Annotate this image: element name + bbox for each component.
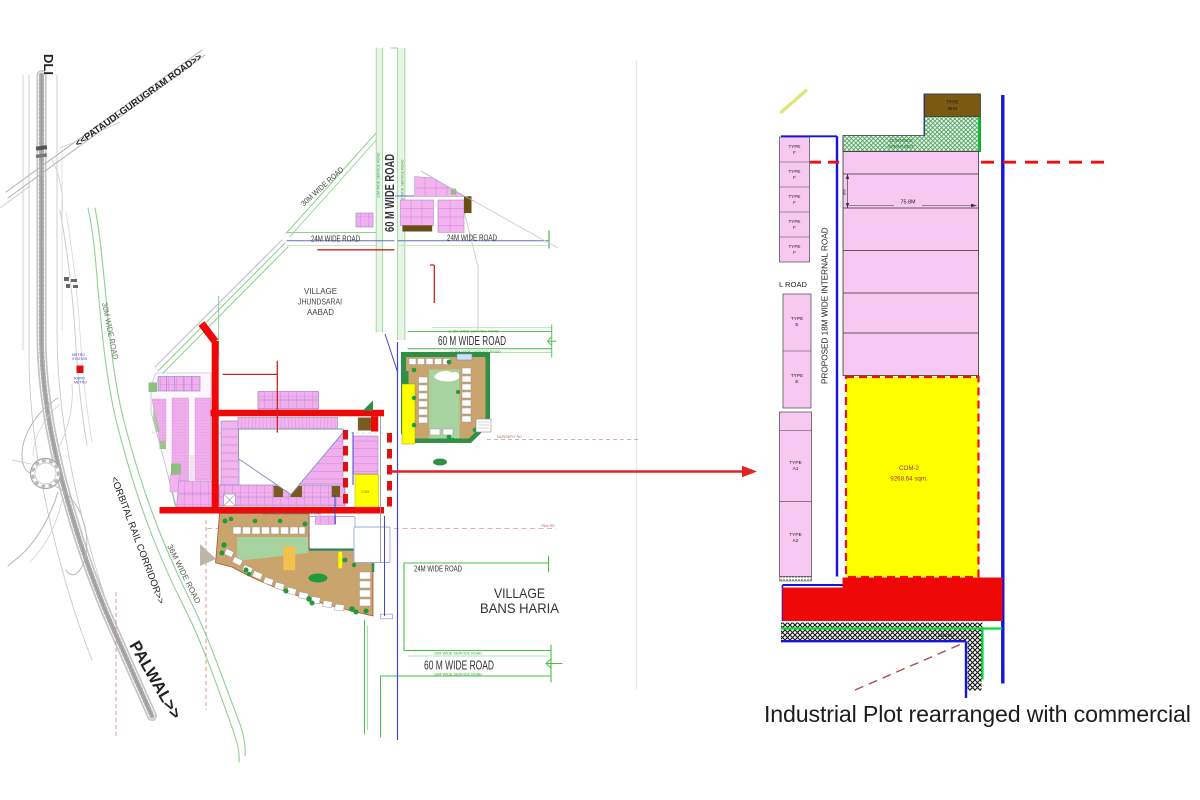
svg-text:A1: A1 (793, 466, 799, 472)
svg-text:F: F (793, 150, 796, 155)
svg-text:VILLAGE: VILLAGE (304, 287, 338, 296)
svg-text:DLI: DLI (41, 54, 56, 75)
svg-text:GREEN BELT: GREEN BELT (888, 144, 915, 149)
svg-text:BANS HARIA: BANS HARIA (480, 601, 560, 616)
svg-text:TYPE: TYPE (789, 144, 801, 149)
svg-text:NURSERY RD: NURSERY RD (497, 435, 522, 439)
svg-text:STATION: STATION (72, 357, 87, 361)
svg-text:11.5M WIDE SERVICE ROAD: 11.5M WIDE SERVICE ROAD (448, 330, 499, 334)
svg-text:F: F (793, 225, 796, 230)
svg-text:TYPE: TYPE (947, 100, 959, 105)
svg-text:75M RD: 75M RD (541, 524, 555, 528)
svg-text:75.8M: 75.8M (901, 200, 916, 206)
svg-text:A2: A2 (793, 538, 799, 544)
svg-text:60 M WIDE ROAD: 60 M WIDE ROAD (438, 334, 506, 348)
svg-text:12.5M WIDE: 12.5M WIDE (889, 138, 913, 143)
svg-text:TYPE: TYPE (791, 373, 804, 379)
svg-text:24M WIDE ROAD: 24M WIDE ROAD (311, 235, 360, 244)
svg-text:TYPE: TYPE (789, 532, 802, 538)
svg-text:F: F (793, 175, 796, 180)
svg-text:8M: 8M (842, 189, 847, 195)
svg-text:24M WIDE ROAD: 24M WIDE ROAD (414, 565, 462, 574)
svg-text:JHUNDSARAI: JHUNDSARAI (298, 298, 342, 307)
svg-text:24M WIDE ROAD: 24M WIDE ROAD (447, 234, 497, 243)
svg-text:60 M WIDE ROAD: 60 M WIDE ROAD (383, 154, 397, 232)
svg-text:VILLAGE: VILLAGE (494, 586, 545, 601)
svg-text:TYPE: TYPE (789, 169, 801, 174)
svg-text:60 M WIDE ROAD: 60 M WIDE ROAD (424, 659, 494, 673)
svg-text:12M WIDE SERVICE ROAD: 12M WIDE SERVICE ROAD (377, 152, 381, 198)
svg-text:TYPE: TYPE (791, 316, 804, 322)
svg-text:9268.64 sqm.: 9268.64 sqm. (890, 476, 928, 483)
svg-text:E: E (795, 379, 798, 385)
svg-text:PROPOSED 18M WIDE INTERNAL ROA: PROPOSED 18M WIDE INTERNAL ROAD (821, 227, 830, 384)
svg-text:METRO: METRO (74, 381, 87, 385)
svg-text:GREEN: GREEN (938, 633, 954, 638)
svg-text:60M WIDE ROAD 24M WIDE ROAD: 60M WIDE ROAD 24M WIDE ROAD (263, 512, 322, 516)
svg-text:10M WIDE SERVICE ROAD: 10M WIDE SERVICE ROAD (434, 673, 482, 677)
svg-text:L ROAD: L ROAD (779, 280, 808, 289)
svg-text:F: F (793, 200, 796, 205)
svg-text:COM-2: COM-2 (899, 465, 919, 472)
svg-text:COM: COM (361, 490, 369, 494)
svg-text:BH3: BH3 (948, 106, 957, 111)
svg-text:F: F (793, 250, 796, 255)
svg-text:TYPE: TYPE (789, 219, 801, 224)
svg-text:TYPE: TYPE (789, 460, 802, 466)
svg-text:Industrial Plot rearranged wit: Industrial Plot rearranged with commerci… (764, 701, 1191, 727)
svg-text:E: E (795, 322, 798, 328)
svg-text:TYPE: TYPE (789, 194, 801, 199)
svg-text:TYPE: TYPE (789, 244, 801, 249)
svg-text:10M WIDE SERVICE ROAD: 10M WIDE SERVICE ROAD (434, 652, 482, 656)
svg-text:AABAD: AABAD (307, 308, 334, 317)
svg-text:12M WIDE SERVICE ROAD: 12M WIDE SERVICE ROAD (401, 159, 405, 205)
